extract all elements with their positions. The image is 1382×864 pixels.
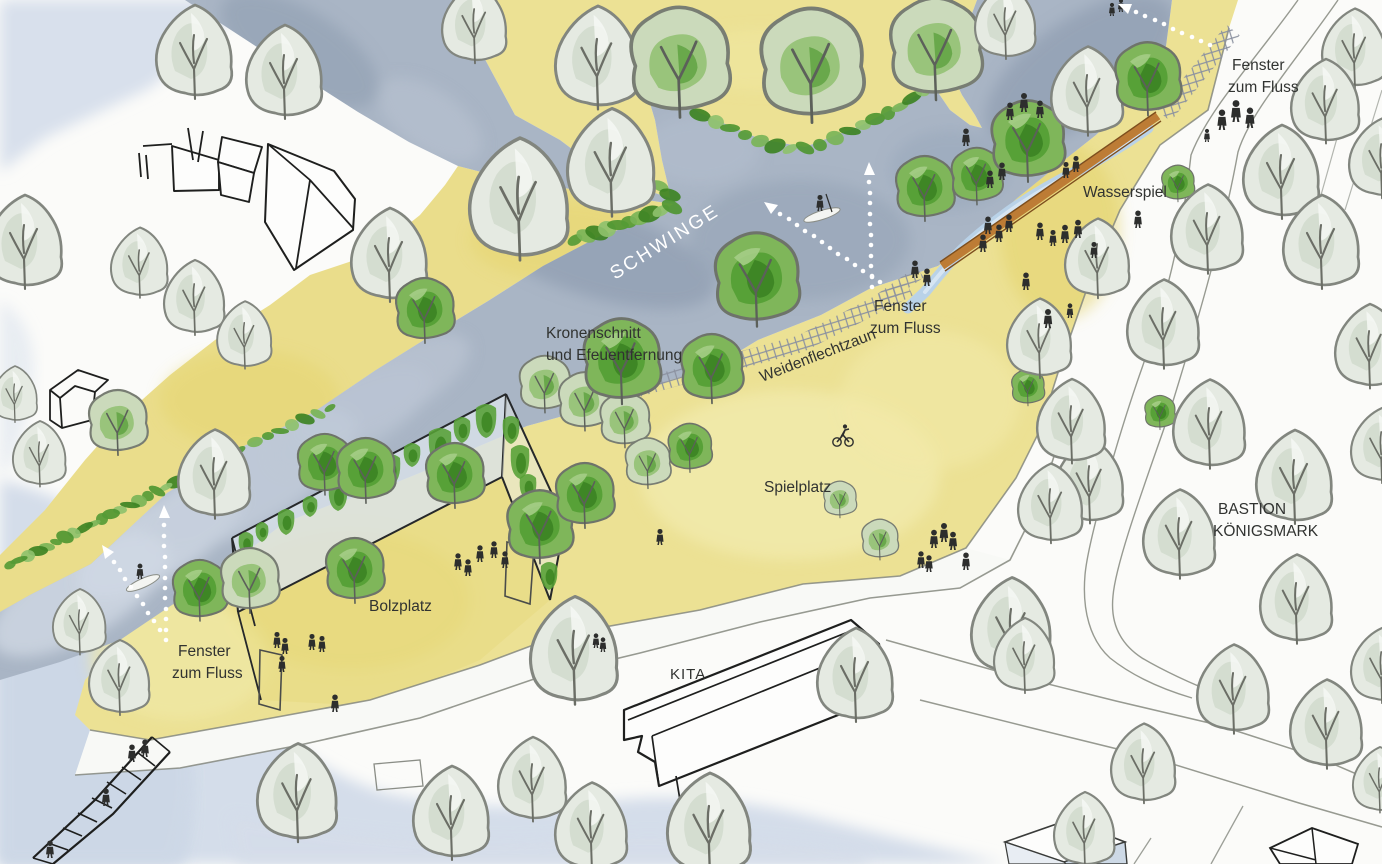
svg-text:Spielplatz: Spielplatz (764, 479, 831, 496)
svg-text:zum Fluss: zum Fluss (1228, 79, 1299, 96)
svg-text:Bolzplatz: Bolzplatz (369, 598, 432, 615)
svg-text:KÖNIGSMARK: KÖNIGSMARK (1213, 522, 1319, 540)
svg-text:zum Fluss: zum Fluss (870, 320, 941, 337)
svg-text:Fenster: Fenster (178, 643, 231, 660)
svg-text:Wasserspiel: Wasserspiel (1083, 184, 1167, 201)
svg-text:Fenster: Fenster (1232, 57, 1285, 74)
svg-text:BASTION: BASTION (1218, 501, 1286, 518)
svg-text:zum Fluss: zum Fluss (172, 665, 243, 682)
svg-text:Fenster: Fenster (874, 298, 927, 315)
svg-text:Kronenschnitt: Kronenschnitt (546, 325, 641, 342)
svg-text:und Efeuentfernung: und Efeuentfernung (546, 347, 682, 364)
svg-text:KITA: KITA (670, 666, 706, 683)
